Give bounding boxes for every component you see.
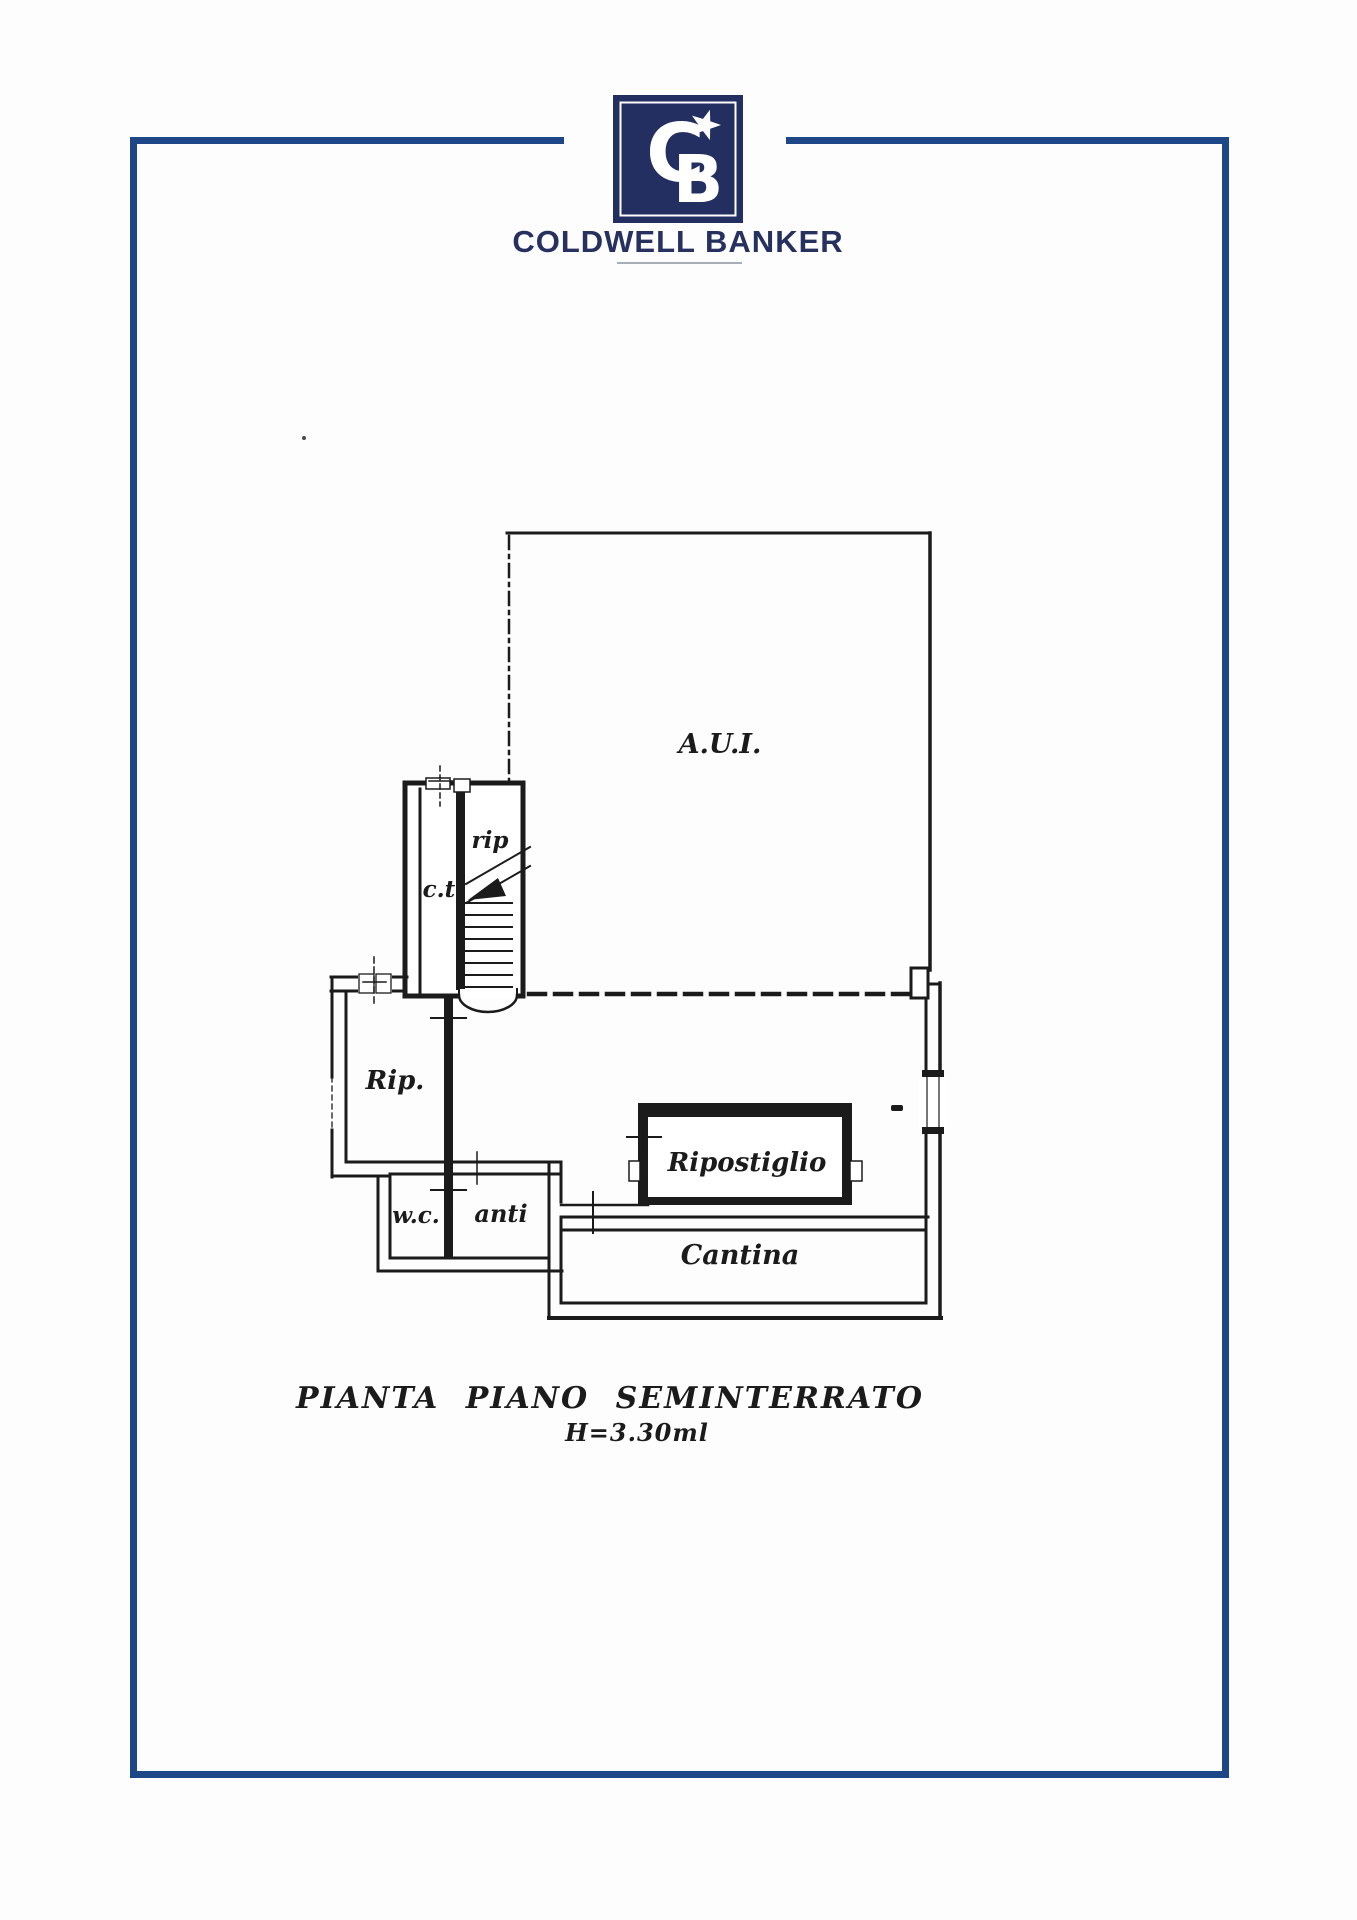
floor-plan-drawing: A.U.I. rip c.t. Rip. w.c. anti Ripostigl…	[0, 0, 1357, 1920]
room-label-rip: Rip.	[365, 1066, 425, 1096]
floor-plan-page: C B COLDWELL BANKER	[0, 0, 1357, 1920]
wall-pilaster	[911, 968, 928, 998]
plan-height-note: H=3.30ml	[565, 1418, 709, 1447]
room-label-cantina: Cantina	[681, 1240, 799, 1271]
room-label-ct: c.t.	[423, 876, 464, 903]
scan-speck	[302, 436, 306, 440]
room-label-anti: anti	[474, 1199, 527, 1228]
room-label-aui: A.U.I.	[676, 729, 762, 760]
room-label-rip-stair: rip	[472, 827, 509, 854]
right-exterior-wall	[891, 983, 947, 1318]
anti-cantina-junction	[549, 1162, 648, 1318]
plan-title: PIANTA PIANO SEMINTERRATO	[296, 1381, 924, 1416]
room-label-wc: w.c.	[392, 1202, 440, 1229]
survey-tick	[891, 1105, 903, 1111]
room-label-ripostiglio: Ripostiglio	[667, 1148, 827, 1178]
